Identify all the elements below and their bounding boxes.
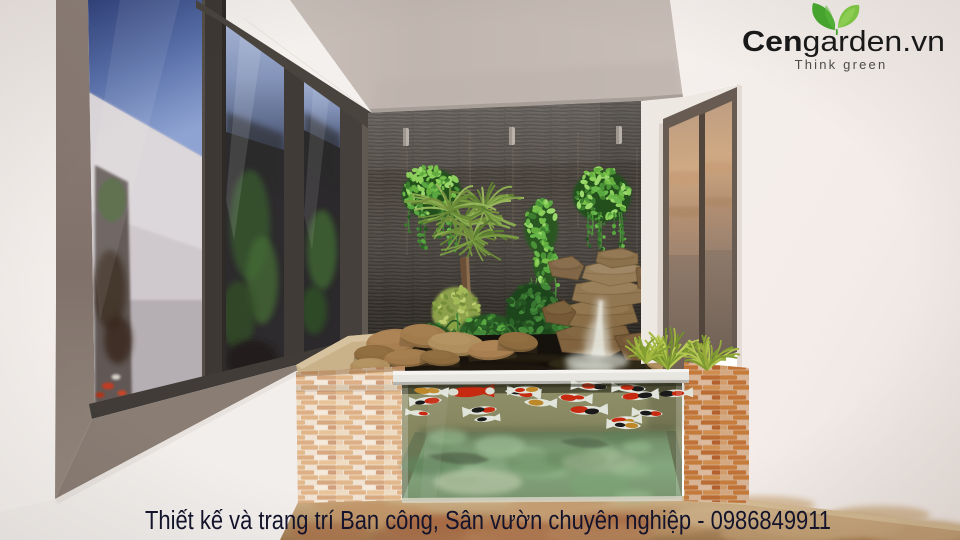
svg-text:Cengarden.vn: Cengarden.vn [742,26,945,58]
svg-text:Think green: Think green [795,57,888,72]
svg-text:Thiết kế và trang trí Ban công: Thiết kế và trang trí Ban công, Sân vườn… [145,507,831,535]
